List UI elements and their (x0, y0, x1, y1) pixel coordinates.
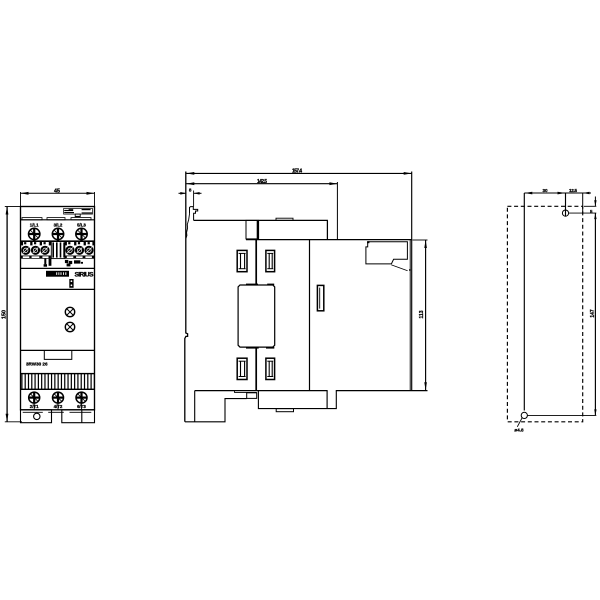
svg-text:SIRIUS: SIRIUS (75, 272, 95, 279)
svg-text:2/T1: 2/T1 (30, 404, 39, 409)
svg-text:12.5: 12.5 (569, 188, 577, 193)
svg-text:6/T3: 6/T3 (77, 404, 86, 409)
svg-text:1/L1: 1/L1 (30, 223, 39, 228)
svg-text:147: 147 (590, 309, 596, 318)
svg-text:4/T2: 4/T2 (54, 404, 63, 409)
svg-text:5/L3: 5/L3 (77, 223, 86, 228)
svg-text:113: 113 (419, 310, 425, 318)
svg-text:150: 150 (2, 310, 8, 319)
svg-text:ø4.8: ø4.8 (514, 428, 524, 433)
svg-text:8: 8 (189, 188, 192, 193)
svg-text:3/L2: 3/L2 (54, 223, 63, 228)
svg-text:3RW30 26: 3RW30 26 (26, 362, 48, 367)
svg-text:142.5: 142.5 (257, 179, 267, 185)
svg-text:157.4: 157.4 (292, 169, 302, 175)
svg-text:30: 30 (542, 188, 548, 193)
svg-text:45: 45 (54, 189, 60, 195)
